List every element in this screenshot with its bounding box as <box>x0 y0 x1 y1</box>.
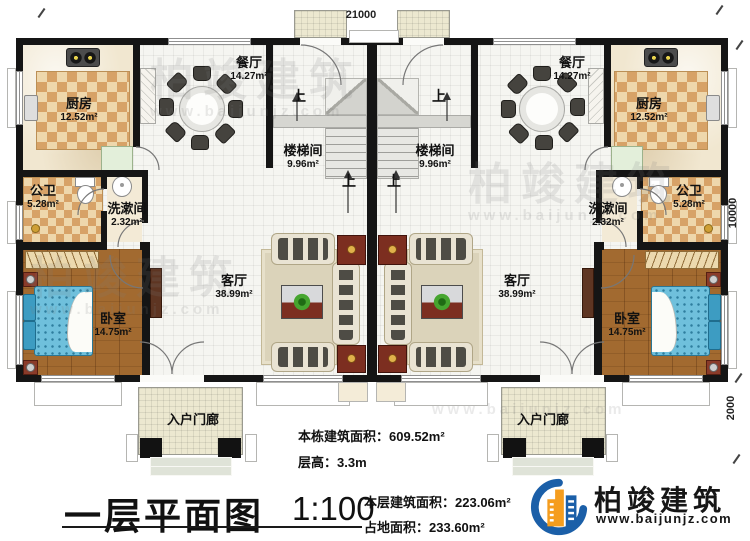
window-sill <box>728 291 737 369</box>
porch-side-sill <box>245 434 257 462</box>
chair <box>159 98 174 116</box>
window-sill <box>7 68 16 128</box>
window-sill <box>7 291 16 369</box>
brand-website: www.baijunjz.com <box>596 511 732 526</box>
room-label-dining: 餐厅14.27m² <box>553 56 590 82</box>
coffee-table <box>281 285 323 319</box>
stat-floor-height: 层高：3.3m <box>298 452 367 471</box>
wall <box>101 177 107 189</box>
door-opening <box>540 375 604 382</box>
wall <box>372 38 377 382</box>
room-label-entry-porch: 入户门廊 <box>167 413 219 428</box>
wall <box>637 177 643 189</box>
window-sill <box>728 68 737 128</box>
wall <box>596 170 728 177</box>
room-label-bathroom: 公卫5.28m² <box>27 184 59 210</box>
window-sill <box>338 382 368 402</box>
chair <box>191 135 209 150</box>
wall <box>140 242 150 250</box>
window-sill <box>394 382 488 406</box>
kitchen-sink <box>706 95 720 121</box>
door-opening <box>403 38 444 45</box>
sofa <box>332 262 360 345</box>
tv-cabinet <box>378 235 407 265</box>
floor-drain <box>704 224 713 233</box>
tv-cabinet <box>337 345 366 373</box>
window-sill <box>34 382 122 406</box>
chair <box>570 98 585 116</box>
tv-cabinet <box>337 235 366 265</box>
dining-table <box>179 86 225 132</box>
room-label-kitchen: 厨房12.52m² <box>630 97 667 123</box>
porch-step <box>512 466 594 476</box>
stat-building-total: 本栋建筑面积：609.52m² <box>298 426 445 445</box>
wash-basin <box>612 176 632 197</box>
window <box>493 38 576 45</box>
window-sill <box>7 201 16 244</box>
wall <box>637 242 728 250</box>
room-label-washroom: 洗漱间2.32m² <box>588 202 627 228</box>
room-label-stairwell: 楼梯间9.96m² <box>415 144 454 170</box>
nightstand <box>706 360 721 375</box>
back-porch <box>397 10 450 38</box>
back-porch <box>294 10 347 38</box>
stove <box>66 48 100 67</box>
unit-right <box>372 8 728 478</box>
room-label-bedroom: 卧室14.75m² <box>94 312 131 338</box>
wall <box>142 250 150 375</box>
dimension-tick <box>735 373 743 383</box>
porch-side-sill <box>126 434 138 462</box>
room-label-bedroom: 卧室14.75m² <box>608 312 645 338</box>
kitchen-sink <box>24 95 38 121</box>
window <box>721 295 728 365</box>
porch-pier <box>218 438 241 458</box>
sofa <box>384 262 412 345</box>
title-underline <box>62 526 362 528</box>
pillow <box>708 294 721 321</box>
window <box>41 375 115 382</box>
window-sill <box>622 382 710 406</box>
stat-floor-area: 本层建筑面积：223.06m² <box>364 492 511 511</box>
window <box>263 375 343 382</box>
window <box>168 38 251 45</box>
wall <box>16 242 107 250</box>
sofa <box>271 233 335 265</box>
sofa <box>409 233 473 265</box>
room-label-kitchen: 厨房12.52m² <box>60 97 97 123</box>
pillow <box>23 321 36 350</box>
sofa <box>271 342 335 372</box>
floor-plan: 21000 10000 2000 柏竣建筑 www.baijunjz.com 柏… <box>0 0 750 541</box>
window <box>721 71 728 125</box>
scale-label: 1:100 <box>292 490 375 528</box>
stair-up-label: 上 <box>292 86 306 106</box>
coffee-table <box>421 285 463 319</box>
wall <box>604 45 611 147</box>
stove <box>644 48 678 67</box>
wall <box>594 250 602 375</box>
porch-pier <box>503 438 526 458</box>
room-label-washroom: 洗漱间2.32m² <box>107 202 146 228</box>
window <box>16 205 23 240</box>
pillow <box>23 294 36 321</box>
window-sill <box>256 382 350 406</box>
room-label-bathroom: 公卫5.28m² <box>673 184 705 210</box>
sofa <box>409 342 473 372</box>
stair-up-label: 上 <box>432 86 446 106</box>
wall <box>133 45 140 147</box>
door-opening <box>140 375 204 382</box>
chair <box>228 100 243 118</box>
room-label-dining: 餐厅14.27m² <box>230 56 267 82</box>
blanket <box>67 292 92 352</box>
center-step <box>349 30 399 43</box>
brand-logo-icon <box>527 477 591 537</box>
pillow <box>708 321 721 350</box>
room-label-living: 客厅38.99m² <box>215 274 252 300</box>
tv-cabinet <box>378 345 407 373</box>
window <box>16 295 23 365</box>
plant <box>433 293 451 311</box>
wardrobe <box>25 251 99 269</box>
porch-step <box>150 466 232 476</box>
hall-cabinet <box>582 268 594 318</box>
page-title: 一层平面图 <box>64 486 264 540</box>
dimension-right-porch: 2000 <box>725 396 737 420</box>
window <box>16 71 23 125</box>
porch-side-sill <box>606 434 618 462</box>
nightstand <box>23 272 38 287</box>
room-label-living: 客厅38.99m² <box>498 274 535 300</box>
window-sill <box>376 382 406 402</box>
porch-side-sill <box>487 434 499 462</box>
room-label-stairwell: 楼梯间9.96m² <box>283 144 322 170</box>
nightstand <box>706 272 721 287</box>
wall <box>594 242 604 250</box>
wash-basin <box>112 176 132 197</box>
dimension-right: 10000 <box>727 198 739 229</box>
floor-drain <box>31 224 40 233</box>
chair <box>533 66 551 81</box>
dining-table <box>519 86 565 132</box>
chair <box>501 100 516 118</box>
window <box>401 375 481 382</box>
wall <box>16 170 148 177</box>
stair-up-label: 上 <box>387 171 401 191</box>
unit-left <box>16 8 372 478</box>
wall <box>471 45 478 168</box>
door-opening <box>300 38 341 45</box>
stair-ramp <box>377 78 419 115</box>
sideboard <box>140 68 156 124</box>
stair-ramp <box>325 78 367 115</box>
porch-pier <box>582 438 604 458</box>
window <box>629 375 703 382</box>
chair <box>193 66 211 81</box>
bed <box>34 286 93 356</box>
dimension-tick <box>733 454 741 464</box>
chair <box>535 135 553 150</box>
bed <box>651 286 710 356</box>
plant <box>293 293 311 311</box>
dimension-tick <box>736 40 744 50</box>
nightstand <box>23 360 38 375</box>
hall-cabinet <box>150 268 162 318</box>
stair-up-label: 上 <box>342 171 356 191</box>
porch-pier <box>140 438 162 458</box>
stat-land-area: 占地面积：233.60m² <box>364 517 485 536</box>
room-label-entry-porch: 入户门廊 <box>517 413 569 428</box>
wardrobe <box>645 251 719 269</box>
blanket <box>652 292 677 352</box>
dimension-top: 21000 <box>346 9 377 21</box>
